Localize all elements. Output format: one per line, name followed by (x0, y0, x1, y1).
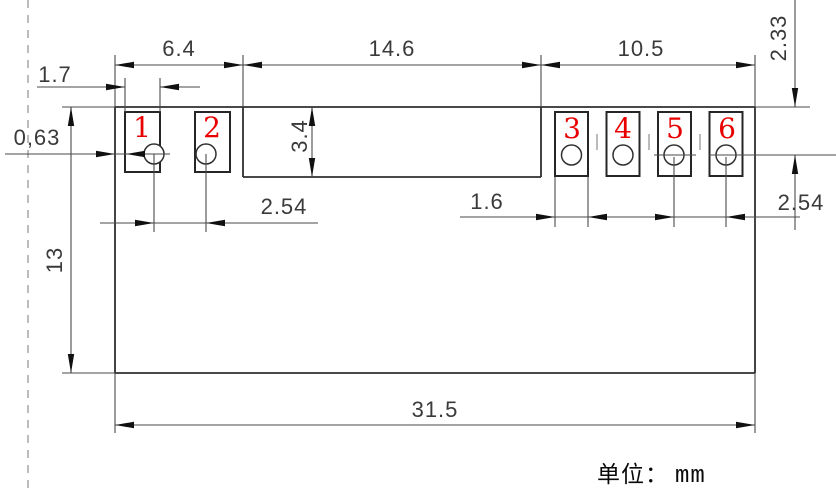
dimension-top-row: 6.4 14.6 10.5 (115, 36, 755, 68)
unit-label: 单位： (597, 461, 669, 487)
dimension-notch-depth: 3.4 (287, 107, 315, 177)
dim-2-54-right: 2.54 (778, 190, 825, 215)
dim-10-5: 10.5 (618, 36, 665, 61)
dim-6-4: 6.4 (162, 36, 196, 61)
dimension-pad1-width: 1.7 (37, 62, 200, 90)
pin-number-6: 6 (718, 112, 736, 145)
pin-number-3: 3 (563, 112, 581, 145)
dimension-right-row: 1.6 2.54 (460, 189, 824, 220)
pin-number-1: 1 (133, 111, 151, 144)
dim-13: 13 (42, 247, 67, 273)
dimension-body-width: 31.5 (115, 397, 755, 428)
dim-14-6: 14.6 (369, 36, 416, 61)
dim-1-7: 1.7 (38, 62, 72, 87)
dim-2-33: 2.33 (766, 15, 791, 62)
holes (144, 144, 736, 165)
dim-1-6: 1.6 (470, 189, 504, 214)
hole-3 (562, 145, 582, 165)
technical-drawing-page: 6.4 14.6 10.5 1.7 0,63 3.4 (0, 0, 836, 490)
footprint-drawing: 6.4 14.6 10.5 1.7 0,63 3.4 (0, 0, 836, 490)
dim-31-5: 31.5 (412, 397, 459, 422)
dimension-left-pitch: 2.54 (100, 194, 318, 226)
pin-number-5: 5 (666, 112, 684, 145)
unit-value: mm (675, 463, 706, 490)
hole-4 (613, 145, 633, 165)
dim-3-4: 3.4 (287, 119, 312, 153)
pin-number-2: 2 (203, 111, 221, 144)
dim-0-63: 0,63 (14, 125, 61, 150)
unit-note: 单位：mm (597, 455, 706, 490)
dim-2-54-left: 2.54 (261, 194, 308, 219)
pin-number-4: 4 (614, 112, 632, 145)
